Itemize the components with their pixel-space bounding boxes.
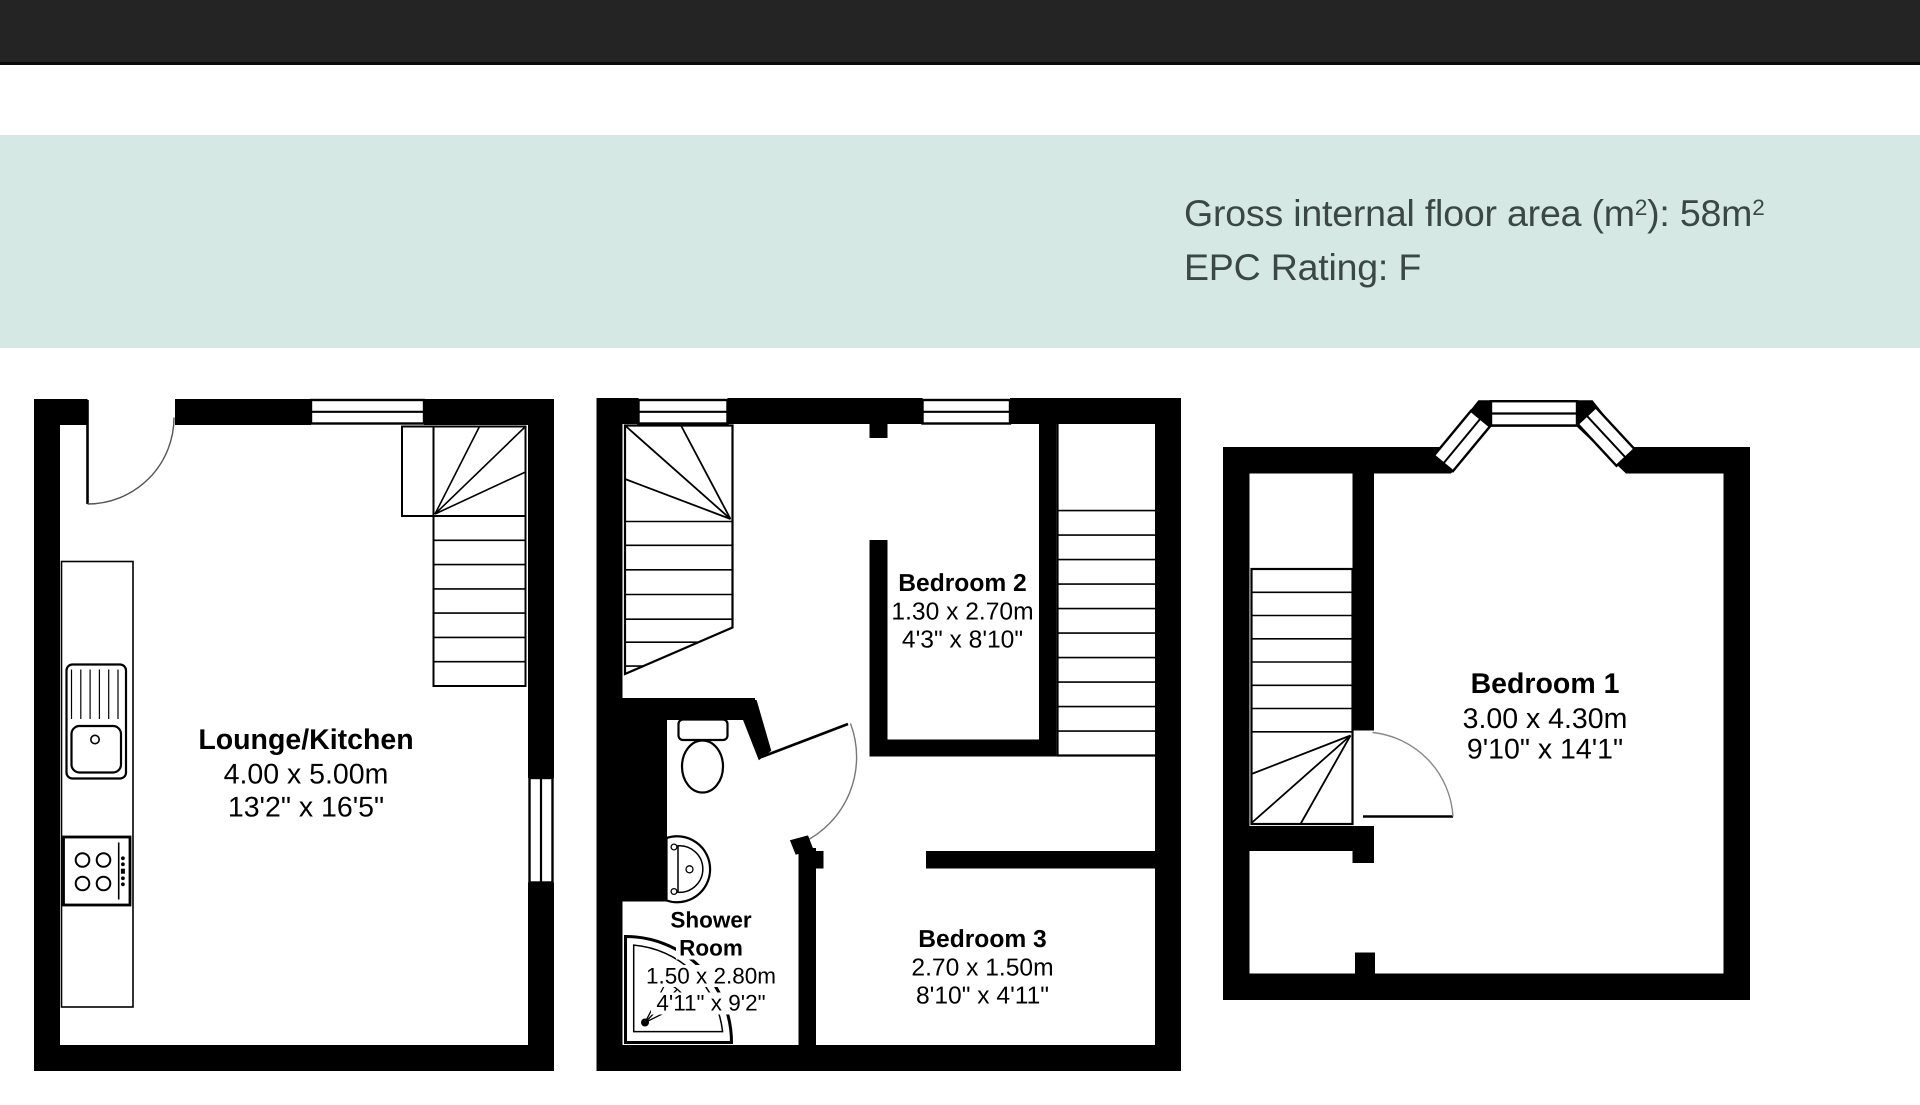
svg-text:Shower: Shower xyxy=(670,908,752,933)
svg-text:8'10" x 4'11": 8'10" x 4'11" xyxy=(916,983,1049,1010)
svg-text:1.30 x 2.70m: 1.30 x 2.70m xyxy=(891,599,1033,626)
svg-text:Bedroom 2: Bedroom 2 xyxy=(898,570,1026,597)
svg-text:Bedroom 1: Bedroom 1 xyxy=(1471,668,1620,700)
svg-text:4'3" x 8'10": 4'3" x 8'10" xyxy=(902,627,1023,654)
svg-text:4'11" x 9'2": 4'11" x 9'2" xyxy=(656,991,765,1016)
svg-text:2.70 x 1.50m: 2.70 x 1.50m xyxy=(911,955,1053,982)
svg-text:9'10" x 14'1": 9'10" x 14'1" xyxy=(1467,734,1623,766)
svg-text:Room: Room xyxy=(679,936,743,961)
svg-text:4.00 x 5.00m: 4.00 x 5.00m xyxy=(224,759,389,791)
svg-text:Lounge/Kitchen: Lounge/Kitchen xyxy=(198,724,413,756)
svg-text:1.50 x 2.80m: 1.50 x 2.80m xyxy=(646,964,776,989)
svg-text:3.00 x 4.30m: 3.00 x 4.30m xyxy=(1463,703,1628,735)
svg-text:Bedroom 3: Bedroom 3 xyxy=(918,926,1046,953)
svg-text:13'2" x 16'5": 13'2" x 16'5" xyxy=(228,792,384,824)
